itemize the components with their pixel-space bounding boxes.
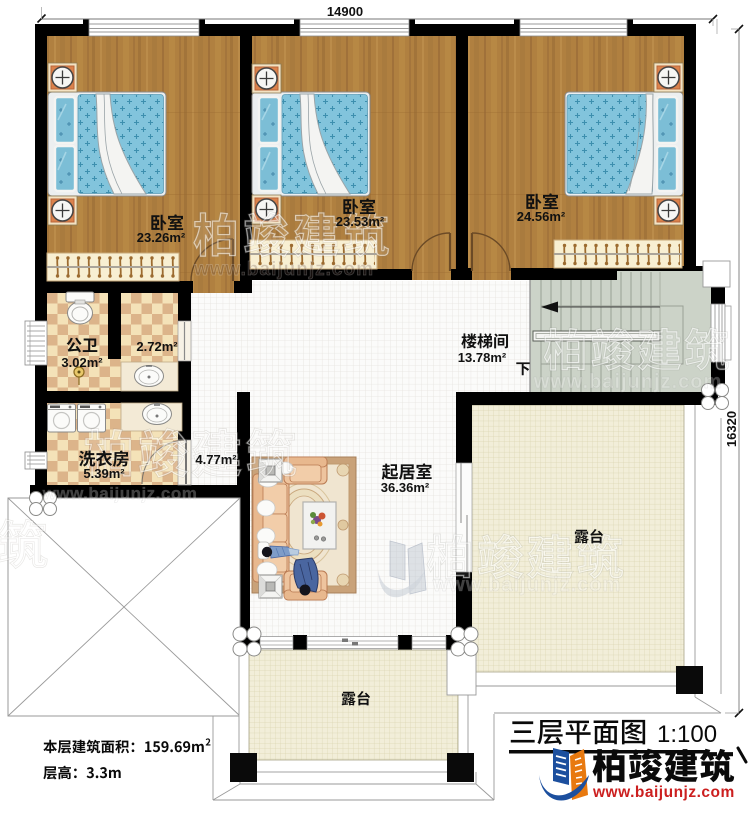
svg-text:4.77m²: 4.77m²: [195, 452, 237, 467]
svg-text:2.72m²: 2.72m²: [136, 339, 178, 354]
svg-text:24.56m²: 24.56m²: [517, 209, 566, 224]
svg-text:23.26m²: 23.26m²: [137, 230, 186, 245]
svg-text:5.39m²: 5.39m²: [83, 466, 125, 481]
svg-text:1:100: 1:100: [657, 721, 717, 748]
svg-text:36.36m²: 36.36m²: [381, 480, 430, 495]
svg-text:3.02m²: 3.02m²: [61, 355, 103, 370]
svg-text:www.baijunjz.com: www.baijunjz.com: [432, 574, 622, 596]
svg-text:14900: 14900: [327, 4, 363, 19]
svg-text:www.baijunjz.com: www.baijunjz.com: [533, 371, 723, 393]
svg-text:www.baijunjz.com: www.baijunjz.com: [42, 484, 198, 503]
svg-text:13.78m²: 13.78m²: [458, 350, 507, 365]
svg-text:16320: 16320: [724, 411, 739, 447]
svg-text:23.53m²: 23.53m²: [336, 214, 385, 229]
svg-text:www.baijunjz.com: www.baijunjz.com: [592, 784, 735, 801]
svg-text:www.baijunjz.com: www.baijunjz.com: [193, 259, 374, 280]
